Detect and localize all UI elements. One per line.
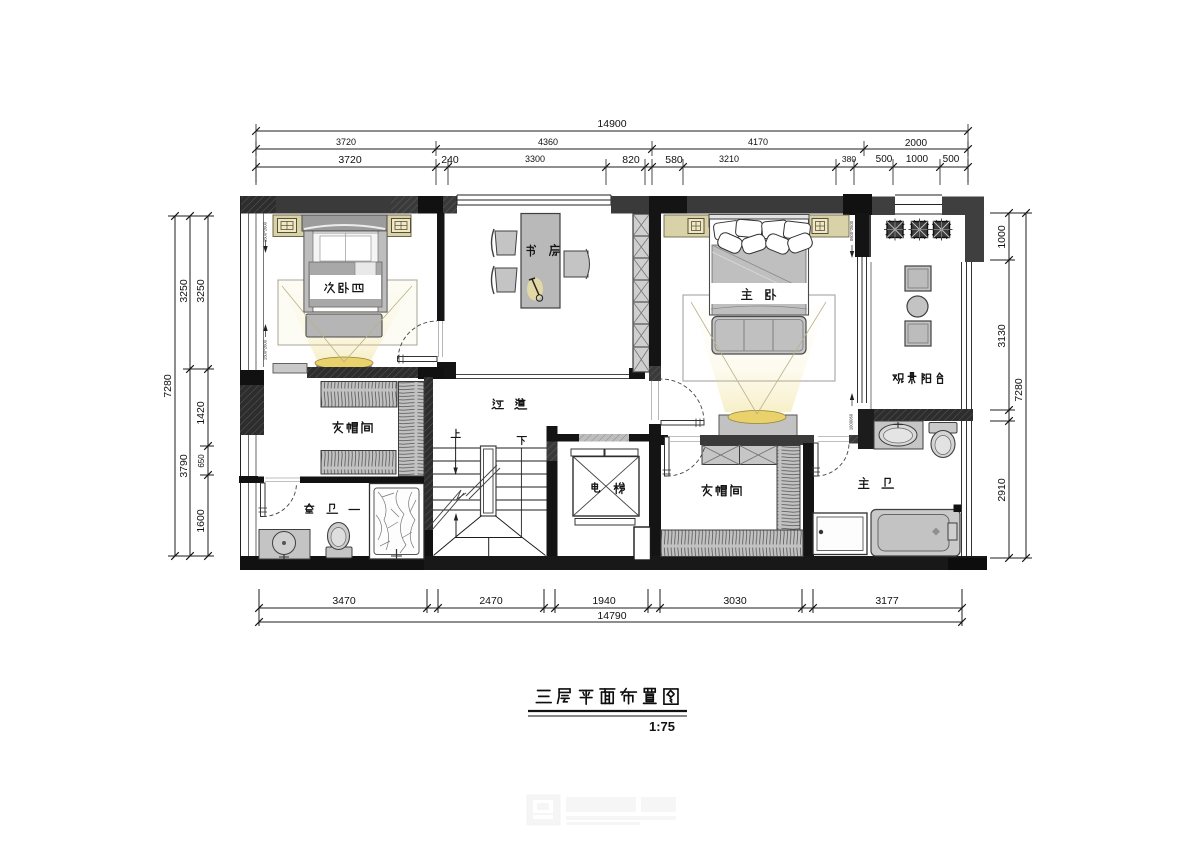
svg-text:580: 580 <box>665 154 683 166</box>
svg-text:500: 500 <box>876 154 893 165</box>
svg-text:7280: 7280 <box>1013 378 1025 402</box>
svg-text:3130: 3130 <box>996 324 1008 348</box>
svg-text:3250: 3250 <box>178 279 190 303</box>
svg-text:3250: 3250 <box>195 279 207 303</box>
svg-text:500: 500 <box>943 154 960 165</box>
svg-text:1:75: 1:75 <box>649 719 675 734</box>
svg-text:3720: 3720 <box>338 154 362 166</box>
svg-text:3210: 3210 <box>719 154 739 164</box>
svg-text:2910: 2910 <box>996 478 1008 502</box>
svg-text:14900: 14900 <box>597 118 626 130</box>
svg-text:1420: 1420 <box>195 401 207 425</box>
svg-text:0600*2600: 0600*2600 <box>849 220 854 241</box>
svg-text:650: 650 <box>197 454 206 468</box>
svg-text:1000: 1000 <box>996 225 1008 249</box>
svg-text:3030: 3030 <box>723 595 747 607</box>
svg-text:3300: 3300 <box>525 154 545 164</box>
svg-text:7280: 7280 <box>162 374 174 398</box>
svg-text:820: 820 <box>622 154 640 166</box>
svg-text:4360: 4360 <box>538 137 558 147</box>
svg-text:1000060: 1000060 <box>849 413 854 430</box>
svg-text:14790: 14790 <box>597 610 626 622</box>
svg-text:2000: 2000 <box>905 138 928 149</box>
svg-text:240: 240 <box>441 154 459 166</box>
svg-text:1600: 1600 <box>195 509 207 533</box>
svg-text:1500*2600: 1500*2600 <box>263 339 268 360</box>
svg-text:3720: 3720 <box>336 137 356 147</box>
svg-text:380: 380 <box>842 154 856 164</box>
svg-text:3470: 3470 <box>332 595 356 607</box>
svg-text:1000: 1000 <box>906 154 929 165</box>
svg-text:1500*2600: 1500*2600 <box>263 221 268 242</box>
svg-text:1940: 1940 <box>592 595 616 607</box>
svg-text:2470: 2470 <box>479 595 503 607</box>
svg-text:3790: 3790 <box>178 454 190 478</box>
svg-text:3177: 3177 <box>875 595 899 607</box>
svg-text:4170: 4170 <box>748 137 768 147</box>
